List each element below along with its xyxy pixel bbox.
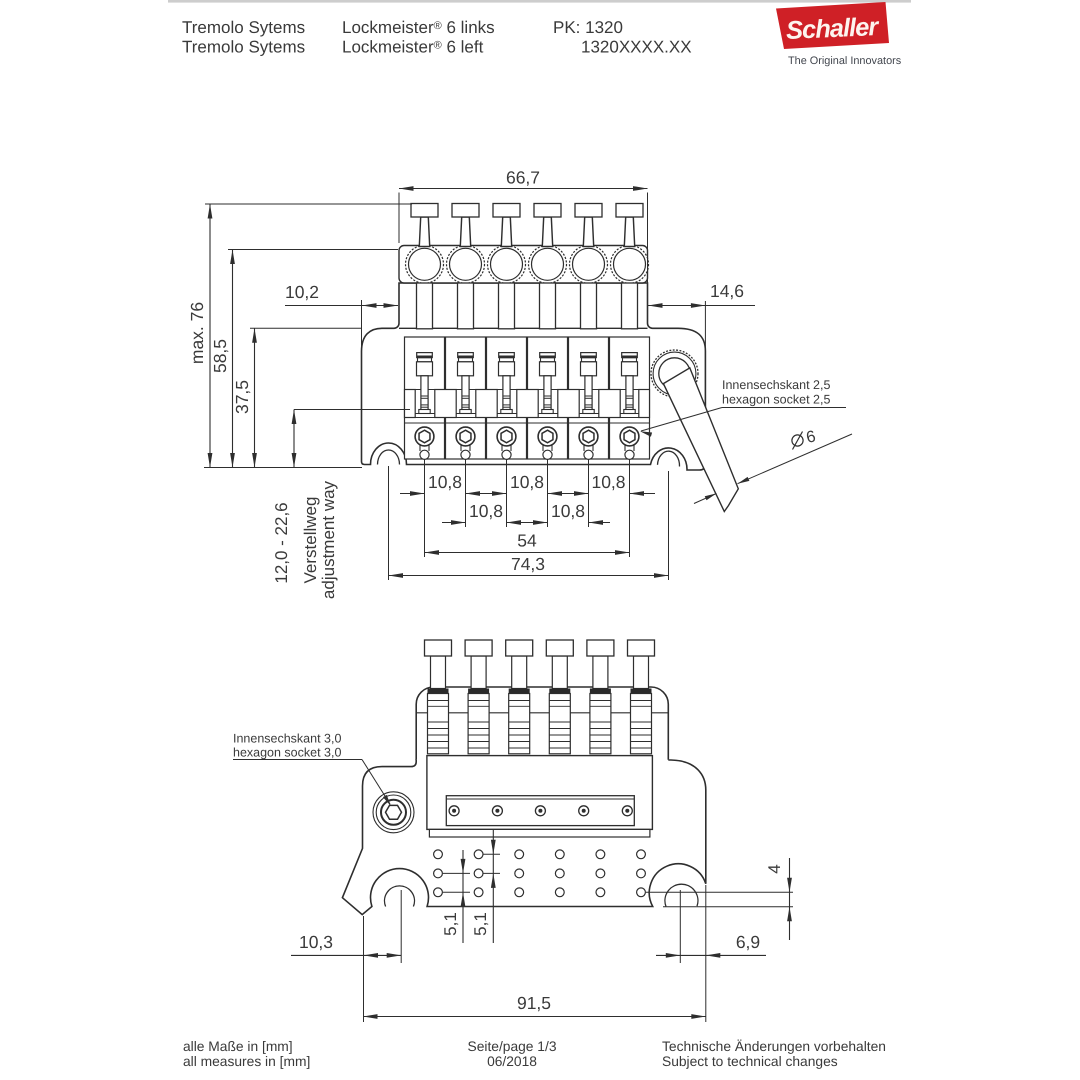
svg-text:10,8: 10,8 [469,501,503,521]
svg-text:10,2: 10,2 [285,282,319,302]
svg-text:10,8: 10,8 [591,472,625,492]
svg-text:10,3: 10,3 [299,932,333,952]
svg-text:12,0 - 22,6: 12,0 - 22,6 [272,502,291,583]
svg-text:Innensechskant 3,0: Innensechskant 3,0 [233,732,341,746]
svg-text:Technische Änderungen vorbehal: Technische Änderungen vorbehalten [662,1039,886,1054]
svg-text:Schaller: Schaller [785,13,880,45]
svg-text:37,5: 37,5 [232,380,252,414]
svg-text:91,5: 91,5 [517,993,551,1013]
svg-text:10,8: 10,8 [510,472,544,492]
svg-text:1320XXXX.XX: 1320XXXX.XX [581,38,692,57]
svg-text:all measures in [mm]: all measures in [mm] [183,1054,310,1069]
svg-text:The Original Innovators: The Original Innovators [788,55,902,67]
svg-text:adjustment way: adjustment way [319,480,338,599]
svg-text:06/2018: 06/2018 [487,1054,537,1069]
svg-text:Tremolo Sytems: Tremolo Sytems [182,18,305,37]
svg-text:10,8: 10,8 [428,472,462,492]
svg-text:hexagon socket 3,0: hexagon socket 3,0 [233,746,341,760]
svg-text:10,8: 10,8 [551,501,585,521]
svg-text:Verstellweg: Verstellweg [301,497,320,584]
svg-text:54: 54 [517,531,537,551]
svg-text:Tremolo Sytems: Tremolo Sytems [182,38,305,57]
svg-text:66,7: 66,7 [506,168,540,188]
svg-text:alle Maße in [mm]: alle Maße in [mm] [183,1039,293,1054]
svg-text:max. 76: max. 76 [187,302,207,364]
svg-text:Lockmeister® 6 links: Lockmeister® 6 links [342,18,495,37]
svg-text:74,3: 74,3 [511,554,545,574]
svg-text:58,5: 58,5 [210,339,230,373]
svg-text:5,1: 5,1 [441,912,460,936]
svg-text:Seite/page 1/3: Seite/page 1/3 [468,1039,557,1054]
svg-text:6,9: 6,9 [736,932,760,952]
svg-text:Innensechskant 2,5: Innensechskant 2,5 [722,378,830,392]
svg-text:PK: 1320: PK: 1320 [553,18,623,37]
svg-text:Lockmeister® 6 left: Lockmeister® 6 left [342,38,484,57]
svg-text:4: 4 [765,864,784,873]
svg-text:5,1: 5,1 [471,912,490,936]
svg-text:14,6: 14,6 [710,281,744,301]
svg-text:Subject to technical changes: Subject to technical changes [662,1054,838,1069]
svg-text:hexagon socket 2,5: hexagon socket 2,5 [722,393,830,407]
